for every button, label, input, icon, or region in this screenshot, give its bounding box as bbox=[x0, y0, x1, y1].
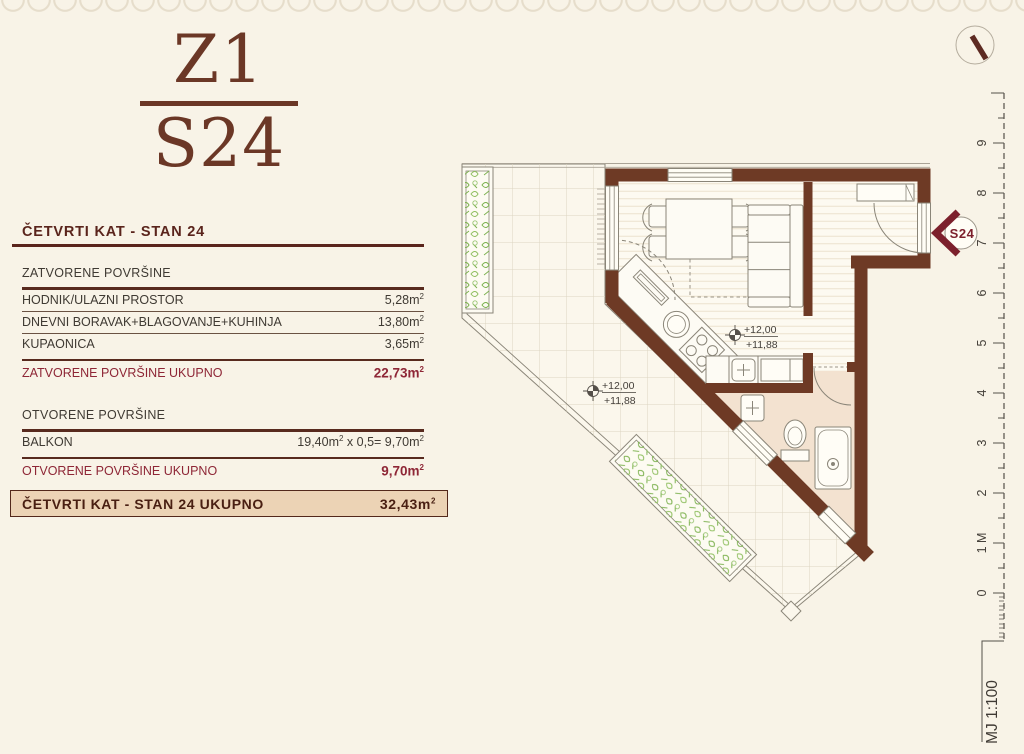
svg-text:2: 2 bbox=[975, 489, 989, 496]
svg-text:9: 9 bbox=[975, 139, 989, 146]
row-value: 5,28m2 bbox=[385, 292, 424, 307]
north-indicator-icon bbox=[956, 26, 994, 64]
table-row: BALKON 19,40m2 x 0,5= 9,70m2 bbox=[22, 432, 424, 453]
row-label: BALKON bbox=[22, 435, 73, 449]
table-row: HODNIK/ULAZNI PROSTOR 5,28m2 bbox=[22, 290, 424, 311]
fridge bbox=[761, 359, 803, 381]
sofa bbox=[748, 205, 803, 307]
dining-table bbox=[666, 199, 732, 259]
svg-text:5: 5 bbox=[975, 339, 989, 346]
row-value: 13,80m2 bbox=[378, 314, 424, 329]
svg-text:3: 3 bbox=[975, 439, 989, 446]
svg-text:+11,88: +11,88 bbox=[604, 395, 636, 407]
closet bbox=[857, 184, 914, 201]
appliance bbox=[732, 359, 755, 381]
svg-text:+12,00: +12,00 bbox=[744, 324, 777, 336]
total-value: 22,73m2 bbox=[374, 365, 424, 381]
closed-areas-heading: ZATVORENE POVRŠINE bbox=[22, 266, 424, 283]
bathroom-sink bbox=[741, 395, 764, 421]
planter bbox=[462, 167, 493, 313]
grand-total-value: 32,43m2 bbox=[380, 496, 436, 512]
logo-building-code: Z1 bbox=[138, 22, 300, 98]
scale-label: MJ 1:100 bbox=[984, 680, 1001, 744]
svg-text:4: 4 bbox=[975, 389, 989, 396]
closed-total-row: ZATVORENE POVRŠINE UKUPNO 22,73m2 bbox=[22, 361, 424, 385]
logo-unit-code: S24 bbox=[138, 108, 300, 180]
row-label: DNEVNI BORAVAK+BLAGOVANJE+KUHINJA bbox=[22, 315, 282, 329]
open-total-row: OTVORENE POVRŠINE UKUPNO 9,70m2 bbox=[22, 459, 424, 483]
kitchen-row bbox=[706, 356, 806, 384]
svg-text:+12,00: +12,00 bbox=[602, 380, 635, 392]
ruler-labels: 9 8 7 6 5 4 3 2 1 M 0 bbox=[975, 139, 989, 596]
row-value: 19,40m2 x 0,5= 9,70m2 bbox=[297, 434, 424, 449]
svg-text:+11,88: +11,88 bbox=[746, 339, 778, 351]
grand-total-box: ČETVRTI KAT - STAN 24 UKUPNO 32,43m2 bbox=[10, 490, 448, 517]
floor-plan: +12,00 +11,88 +12,00 +11,88 S24 9 8 7 bbox=[440, 0, 1024, 754]
total-value: 9,70m2 bbox=[381, 463, 424, 479]
bathtub bbox=[815, 427, 851, 489]
total-label: ZATVORENE POVRŠINE UKUPNO bbox=[22, 366, 223, 380]
page-title: ČETVRTI KAT - STAN 24 bbox=[22, 224, 205, 240]
grand-total-label: ČETVRTI KAT - STAN 24 UKUPNO bbox=[22, 496, 264, 512]
table-row: KUPAONICA 3,65m2 bbox=[22, 334, 424, 355]
plants bbox=[465, 170, 490, 310]
svg-text:8: 8 bbox=[975, 189, 989, 196]
svg-text:1 M: 1 M bbox=[975, 533, 989, 554]
svg-text:7: 7 bbox=[975, 239, 989, 246]
floorplan-sheet: { "logo": { "top": "Z1", "bottom": "S24"… bbox=[0, 0, 1024, 754]
unit-badge: S24 bbox=[936, 212, 977, 254]
top-window bbox=[668, 169, 732, 182]
row-value: 3,65m2 bbox=[385, 336, 424, 351]
row-label: HODNIK/ULAZNI PROSTOR bbox=[22, 293, 184, 307]
title-underline bbox=[12, 244, 424, 247]
svg-text:S24: S24 bbox=[950, 226, 975, 241]
project-logo: Z1 S24 bbox=[138, 22, 300, 180]
open-areas-heading: OTVORENE POVRŠINE bbox=[22, 408, 424, 425]
svg-text:6: 6 bbox=[975, 289, 989, 296]
row-label: KUPAONICA bbox=[22, 337, 95, 351]
svg-text:0: 0 bbox=[975, 589, 989, 596]
table-row: DNEVNI BORAVAK+BLAGOVANJE+KUHINJA 13,80m… bbox=[22, 312, 424, 333]
total-label: OTVORENE POVRŠINE UKUPNO bbox=[22, 464, 217, 478]
area-table: ZATVORENE POVRŠINE HODNIK/ULAZNI PROSTOR… bbox=[22, 266, 424, 483]
